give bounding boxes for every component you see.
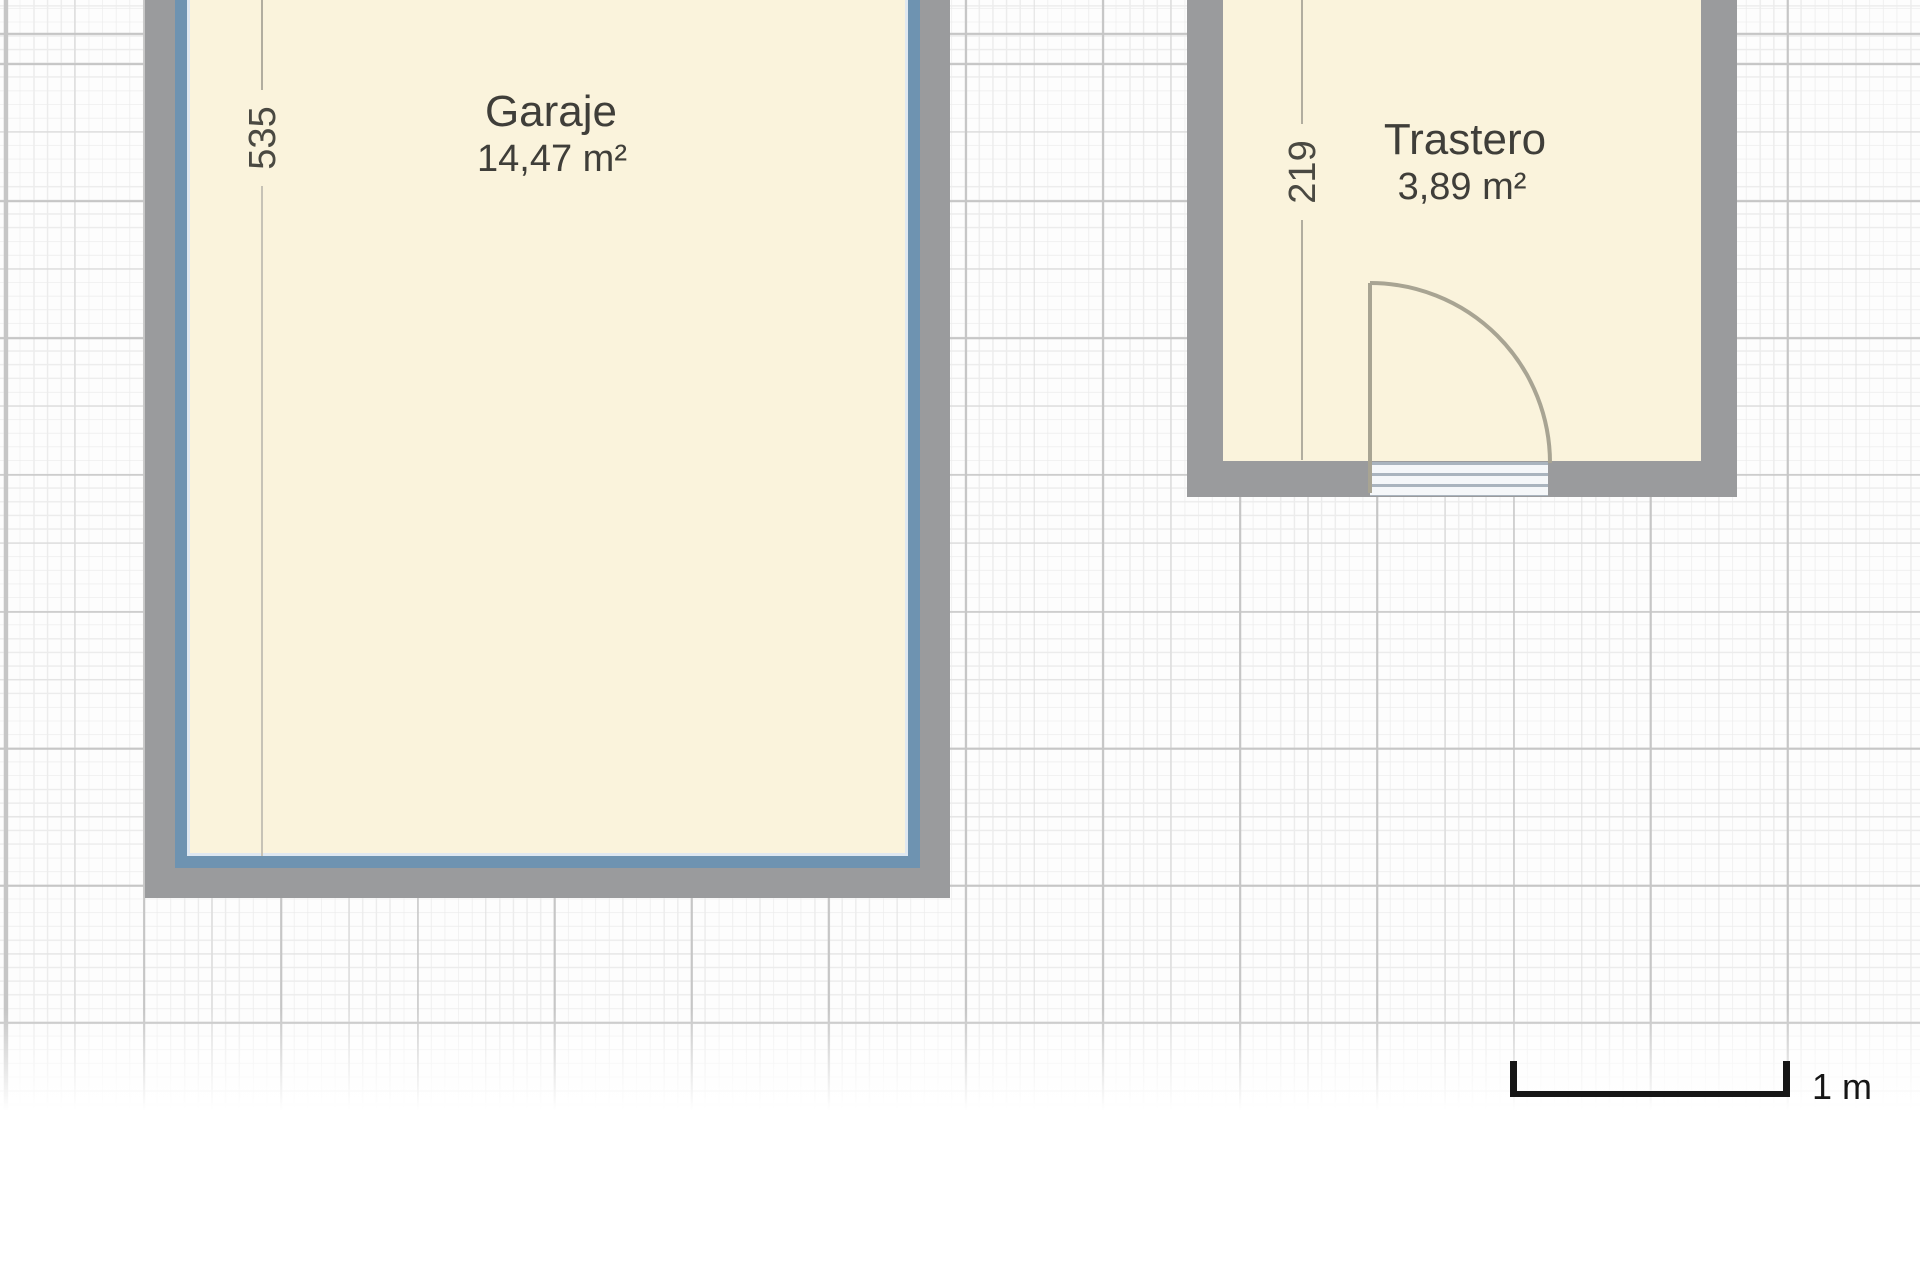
dimension-label-garaje: 535 bbox=[244, 106, 282, 169]
room-trastero-area: 3,89 m² bbox=[1398, 168, 1527, 208]
dimension-line-trastero-lower bbox=[1301, 220, 1303, 460]
room-garaje-area: 14,47 m² bbox=[477, 140, 627, 180]
room-trastero-name: Trastero bbox=[1384, 117, 1546, 163]
door-swing-arc-icon bbox=[1366, 279, 1558, 501]
door[interactable] bbox=[1366, 279, 1558, 501]
scale-bar-right-tick bbox=[1783, 1061, 1790, 1097]
dimension-line-garaje-lower bbox=[261, 186, 263, 856]
dimension-label-trastero: 219 bbox=[1284, 140, 1322, 203]
grid-fade bbox=[0, 1010, 1920, 1128]
room-garaje-name: Garaje bbox=[485, 89, 617, 135]
scale-bar-label: 1 m bbox=[1812, 1066, 1872, 1108]
scale-bar bbox=[1510, 1091, 1790, 1097]
dimension-line-garaje-upper bbox=[261, 0, 263, 90]
dimension-line-trastero-upper bbox=[1301, 0, 1303, 124]
floorplan-canvas[interactable]: 535 219 Garaje 14,47 m² Trastero 3,89 m²… bbox=[0, 0, 1920, 1280]
